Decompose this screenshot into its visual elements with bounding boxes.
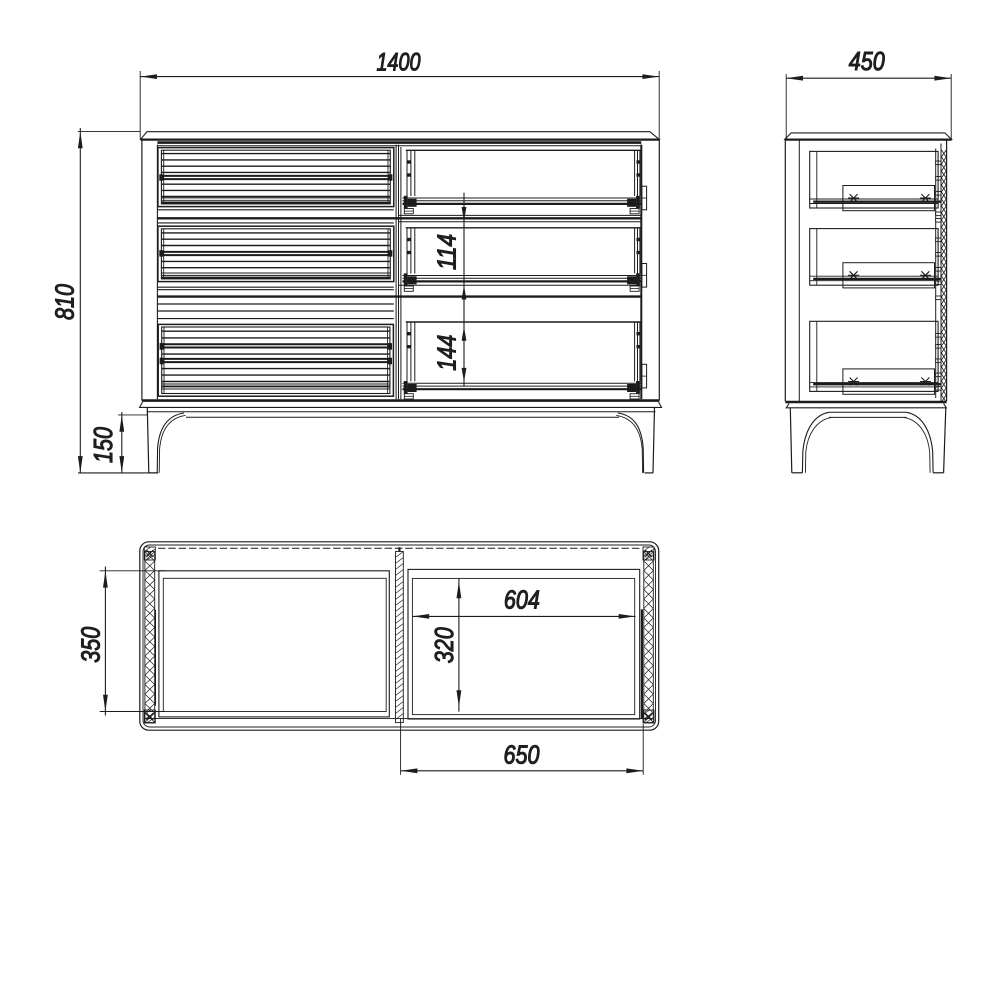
svg-text:150: 150 (88, 427, 118, 463)
svg-text:114: 114 (432, 234, 462, 270)
svg-text:604: 604 (504, 585, 540, 615)
svg-text:144: 144 (432, 335, 462, 371)
svg-text:1400: 1400 (377, 49, 421, 77)
svg-text:450: 450 (849, 46, 885, 76)
svg-text:810: 810 (50, 284, 80, 320)
svg-text:350: 350 (76, 626, 106, 662)
svg-text:650: 650 (504, 740, 540, 770)
svg-text:320: 320 (429, 627, 459, 663)
